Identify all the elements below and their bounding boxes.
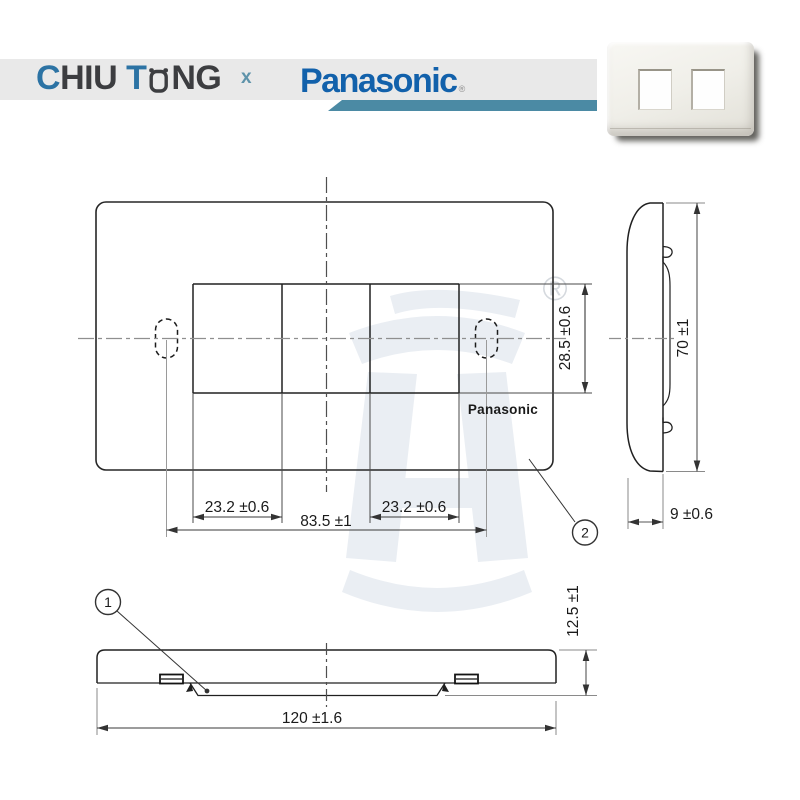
dim-edge-height: 12.5 ±1 (565, 585, 582, 637)
callout-2-number: 2 (581, 525, 589, 541)
dim-plate-depth: 9 ±0.6 (670, 506, 713, 523)
plate-opening-right (691, 69, 725, 110)
plate-logo-text: Panasonic (468, 402, 538, 417)
callout-1-number: 1 (104, 594, 112, 610)
dim-plate-height: 70 ±1 (675, 319, 692, 358)
front-view: Panasonic 28.5 ±0.6 23.2 ±0.6 23.2 ±0.6 … (78, 177, 598, 545)
wall-plate-image (607, 42, 754, 136)
bottom-view: 12.5 ±1 120 ±1.6 1 (96, 585, 598, 735)
dim-cutout-width-right: 23.2 ±0.6 (382, 499, 447, 516)
dim-hole-spacing: 83.5 ±1 (300, 513, 352, 530)
clip-right (455, 675, 478, 684)
dim-cutout-width-left: 23.2 ±0.6 (205, 499, 270, 516)
plate-opening-left (638, 69, 672, 110)
clip-left (160, 675, 183, 684)
dim-cutout-height: 28.5 ±0.6 (557, 306, 574, 371)
product-photo (597, 28, 770, 147)
side-view: 70 ±1 9 ±0.6 (609, 203, 713, 529)
dim-plate-width: 120 ±1.6 (282, 710, 342, 727)
